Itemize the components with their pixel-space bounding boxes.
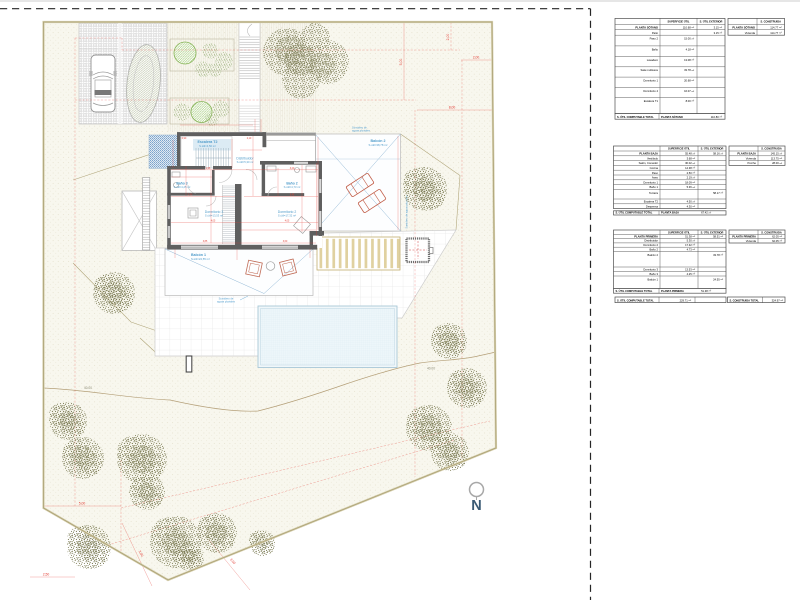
svg-text:m²: m²	[721, 278, 724, 281]
svg-text:Dormitorio 1: Dormitorio 1	[643, 79, 658, 83]
svg-text:m²: m²	[692, 100, 695, 103]
svg-text:Dormitorio 1: Dormitorio 1	[643, 180, 658, 184]
svg-text:1,95: 1,95	[206, 168, 211, 170]
svg-text:m²: m²	[693, 162, 696, 165]
svg-text:m²: m²	[709, 290, 712, 293]
svg-text:2,40: 2,40	[188, 195, 193, 197]
svg-text:15.00: 15.00	[684, 37, 691, 41]
svg-text:8,00: 8,00	[449, 106, 456, 110]
svg-text:18.09: 18.09	[685, 180, 692, 184]
svg-text:3,60: 3,60	[283, 241, 288, 243]
svg-text:Baño 2: Baño 2	[649, 247, 658, 251]
svg-text:Escalera T1: Escalera T1	[644, 99, 659, 103]
svg-text:S. CONSTRUIDA TOTAL: S. CONSTRUIDA TOTAL	[730, 298, 760, 302]
svg-text:m²: m²	[693, 157, 696, 160]
svg-text:Paso: Paso	[652, 171, 659, 175]
svg-text:20.68: 20.68	[684, 79, 691, 83]
svg-text:0,90: 0,90	[182, 138, 187, 140]
svg-text:114.77: 114.77	[770, 31, 779, 35]
svg-text:3.68: 3.68	[687, 156, 693, 160]
svg-text:3.15: 3.15	[714, 26, 720, 30]
svg-text:m²: m²	[692, 37, 695, 40]
svg-text:m²: m²	[693, 152, 696, 155]
svg-text:m²: m²	[780, 162, 783, 165]
svg-text:Balcón 2: Balcón 2	[648, 253, 659, 257]
svg-text:33.78: 33.78	[684, 68, 691, 72]
svg-text:PLANTA PRIMERA: PLANTA PRIMERA	[732, 234, 756, 238]
svg-text:2,00: 2,00	[446, 34, 450, 41]
svg-text:m²: m²	[692, 59, 695, 62]
svg-text:62.05: 62.05	[772, 239, 779, 243]
svg-text:110.68: 110.68	[683, 26, 692, 30]
svg-text:5.30: 5.30	[687, 239, 693, 243]
svg-text:40.00: 40.00	[84, 386, 92, 390]
svg-text:m²: m²	[720, 26, 723, 29]
svg-text:Paso 2: Paso 2	[650, 37, 659, 41]
svg-text:m²: m²	[692, 69, 695, 72]
svg-text:m²: m²	[692, 48, 695, 51]
svg-text:2,50: 2,50	[43, 573, 50, 577]
svg-text:m²: m²	[779, 26, 782, 29]
svg-text:m²: m²	[781, 299, 784, 302]
svg-text:4.73: 4.73	[687, 247, 693, 251]
svg-text:2.19: 2.19	[687, 176, 693, 180]
svg-text:m²: m²	[780, 240, 783, 243]
svg-text:58.16: 58.16	[713, 152, 720, 156]
svg-text:14.38: 14.38	[685, 166, 692, 170]
svg-text:114.77: 114.77	[770, 26, 779, 30]
svg-text:Baño 1: Baño 1	[649, 185, 658, 189]
svg-text:3.15: 3.15	[714, 31, 720, 35]
svg-text:Terraza: Terraza	[649, 191, 658, 195]
svg-text:324.97: 324.97	[772, 298, 781, 302]
svg-text:Vivienda: Vivienda	[746, 156, 757, 160]
svg-text:Lavadero: Lavadero	[647, 58, 659, 62]
svg-text:m²: m²	[693, 239, 696, 242]
svg-text:PLANTA PRIMERA: PLANTA PRIMERA	[661, 289, 684, 293]
svg-text:m²: m²	[693, 248, 696, 251]
svg-text:Dormitorio 4: Dormitorio 4	[643, 89, 658, 93]
svg-text:PLANTA BAJA: PLANTA BAJA	[639, 152, 658, 156]
svg-text:Baño 3: Baño 3	[649, 272, 658, 276]
svg-text:m²: m²	[709, 211, 712, 214]
svg-text:S. CONSTRUIDA: S. CONSTRUIDA	[761, 230, 782, 234]
svg-text:2.50: 2.50	[687, 171, 693, 175]
svg-text:5.36: 5.36	[687, 185, 693, 189]
svg-text:Vivienda: Vivienda	[745, 31, 756, 35]
svg-text:Porche: Porche	[747, 161, 756, 165]
svg-text:m²: m²	[721, 235, 724, 238]
svg-text:55.48: 55.48	[685, 152, 692, 156]
svg-text:m²: m²	[721, 192, 724, 195]
svg-text:33.78: 33.78	[713, 253, 720, 257]
svg-text:N: N	[471, 498, 481, 514]
svg-text:m²: m²	[692, 79, 695, 82]
svg-text:m²: m²	[720, 32, 723, 35]
svg-text:4.30: 4.30	[687, 204, 693, 208]
svg-text:m²: m²	[689, 299, 692, 302]
svg-text:S.útil=5,30 m²: S.útil=5,30 m²	[237, 160, 254, 164]
svg-text:Balcón 1: Balcón 1	[648, 277, 659, 281]
svg-text:51.38: 51.38	[685, 234, 692, 238]
svg-text:5,00: 5,00	[399, 59, 403, 66]
svg-text:m²: m²	[693, 176, 696, 179]
svg-text:m²: m²	[720, 116, 723, 119]
svg-text:S.útil=17,32 m²: S.útil=17,32 m²	[278, 214, 296, 218]
svg-text:PLANTA BAJA: PLANTA BAJA	[737, 152, 756, 156]
svg-text:S.útil=13,53 m²: S.útil=13,53 m²	[205, 214, 223, 218]
svg-text:m²: m²	[693, 186, 696, 189]
svg-text:PLANTA BAJA: PLANTA BAJA	[661, 211, 679, 215]
svg-text:Aseo: Aseo	[652, 176, 659, 180]
svg-text:Salón, Comedor: Salón, Comedor	[639, 161, 659, 165]
svg-text:28.00: 28.00	[772, 161, 779, 165]
svg-text:4.25: 4.25	[687, 272, 693, 276]
svg-text:m²: m²	[693, 172, 696, 175]
svg-text:3,45: 3,45	[290, 195, 295, 197]
svg-text:Vestíbulo: Vestíbulo	[647, 156, 659, 160]
svg-text:Baño 2: Baño 2	[286, 182, 297, 186]
svg-text:m²: m²	[779, 32, 782, 35]
svg-text:110.80: 110.80	[711, 115, 720, 119]
svg-text:Patio: Patio	[652, 31, 659, 35]
svg-text:m²: m²	[780, 157, 783, 160]
svg-text:aguas pluviales: aguas pluviales	[217, 300, 236, 304]
svg-text:8.00: 8.00	[686, 99, 692, 103]
svg-text:4,05: 4,05	[211, 221, 216, 223]
svg-text:m²: m²	[721, 254, 724, 257]
svg-text:58.51: 58.51	[713, 234, 720, 238]
svg-text:S. CONSTRUIDA: S. CONSTRUIDA	[761, 147, 782, 151]
svg-text:S.útil=4,73 m²: S.útil=4,73 m²	[284, 185, 301, 189]
svg-text:m²: m²	[693, 181, 696, 184]
svg-text:m²: m²	[693, 200, 696, 203]
svg-text:62.05: 62.05	[772, 234, 779, 238]
svg-text:Escalera T2: Escalera T2	[198, 140, 218, 144]
svg-text:m²: m²	[692, 26, 695, 29]
svg-text:30.02: 30.02	[685, 161, 692, 165]
svg-text:4.50: 4.50	[687, 200, 693, 204]
svg-text:4,05: 4,05	[285, 221, 290, 223]
svg-text:40.00: 40.00	[427, 367, 435, 371]
svg-text:5,00: 5,00	[79, 502, 86, 506]
svg-text:67.42: 67.42	[701, 211, 708, 215]
svg-text:m²: m²	[693, 167, 696, 170]
svg-text:51.38: 51.38	[701, 289, 708, 293]
svg-text:Distribuidor: Distribuidor	[644, 239, 658, 243]
svg-text:m²: m²	[693, 205, 696, 208]
svg-text:m²: m²	[693, 235, 696, 238]
svg-text:Escalera T2: Escalera T2	[644, 200, 659, 204]
svg-text:m²: m²	[780, 152, 783, 155]
svg-text:S. CONSTRUIDA: S. CONSTRUIDA	[761, 20, 782, 24]
svg-text:Dormitorio 3: Dormitorio 3	[205, 210, 224, 214]
svg-text:Sala multiusos: Sala multiusos	[641, 68, 659, 72]
svg-text:m²: m²	[693, 244, 696, 247]
svg-text:Cocina: Cocina	[650, 166, 659, 170]
svg-text:PLANTA PRIMERA: PLANTA PRIMERA	[634, 234, 658, 238]
svg-text:m²: m²	[721, 152, 724, 155]
svg-text:m²: m²	[692, 90, 695, 93]
svg-text:3,85: 3,85	[203, 241, 208, 243]
svg-text:aguas pluviales: aguas pluviales	[352, 129, 371, 133]
svg-text:4.18: 4.18	[686, 47, 692, 51]
svg-text:Dormitorio 2: Dormitorio 2	[278, 210, 297, 214]
svg-text:58.17: 58.17	[713, 191, 720, 195]
svg-text:Distribuidor: Distribuidor	[236, 157, 254, 161]
svg-text:m²: m²	[693, 273, 696, 276]
svg-text:S.útil=38,78 m²: S.útil=38,78 m²	[369, 143, 388, 147]
svg-text:3,20: 3,20	[290, 168, 295, 170]
svg-text:17.32: 17.32	[685, 243, 692, 247]
svg-text:113.75: 113.75	[771, 156, 780, 160]
svg-text:2,10: 2,10	[247, 138, 252, 140]
svg-text:Dormitorio 2: Dormitorio 2	[643, 243, 658, 247]
svg-text:Vivienda: Vivienda	[746, 239, 757, 243]
svg-text:Dormitorio 3: Dormitorio 3	[643, 267, 658, 271]
svg-text:16.07: 16.07	[684, 89, 691, 93]
svg-text:145.15: 145.15	[771, 152, 780, 156]
svg-text:S.útil=24,55 m²: S.útil=24,55 m²	[191, 257, 210, 261]
svg-text:m²: m²	[693, 268, 696, 271]
svg-text:Despensa: Despensa	[646, 204, 659, 208]
svg-text:Baño: Baño	[652, 47, 659, 51]
svg-text:24.55: 24.55	[713, 277, 720, 281]
svg-text:2,00: 2,00	[473, 56, 480, 60]
svg-text:S.útil=4,50 m²: S.útil=4,50 m²	[199, 144, 216, 148]
svg-text:m²: m²	[780, 235, 783, 238]
svg-text:13.53: 13.53	[685, 267, 692, 271]
svg-text:S.útil=4,25 m²: S.útil=4,25 m²	[174, 185, 191, 189]
svg-text:13.08: 13.08	[684, 58, 691, 62]
svg-text:229.71: 229.71	[680, 298, 689, 302]
